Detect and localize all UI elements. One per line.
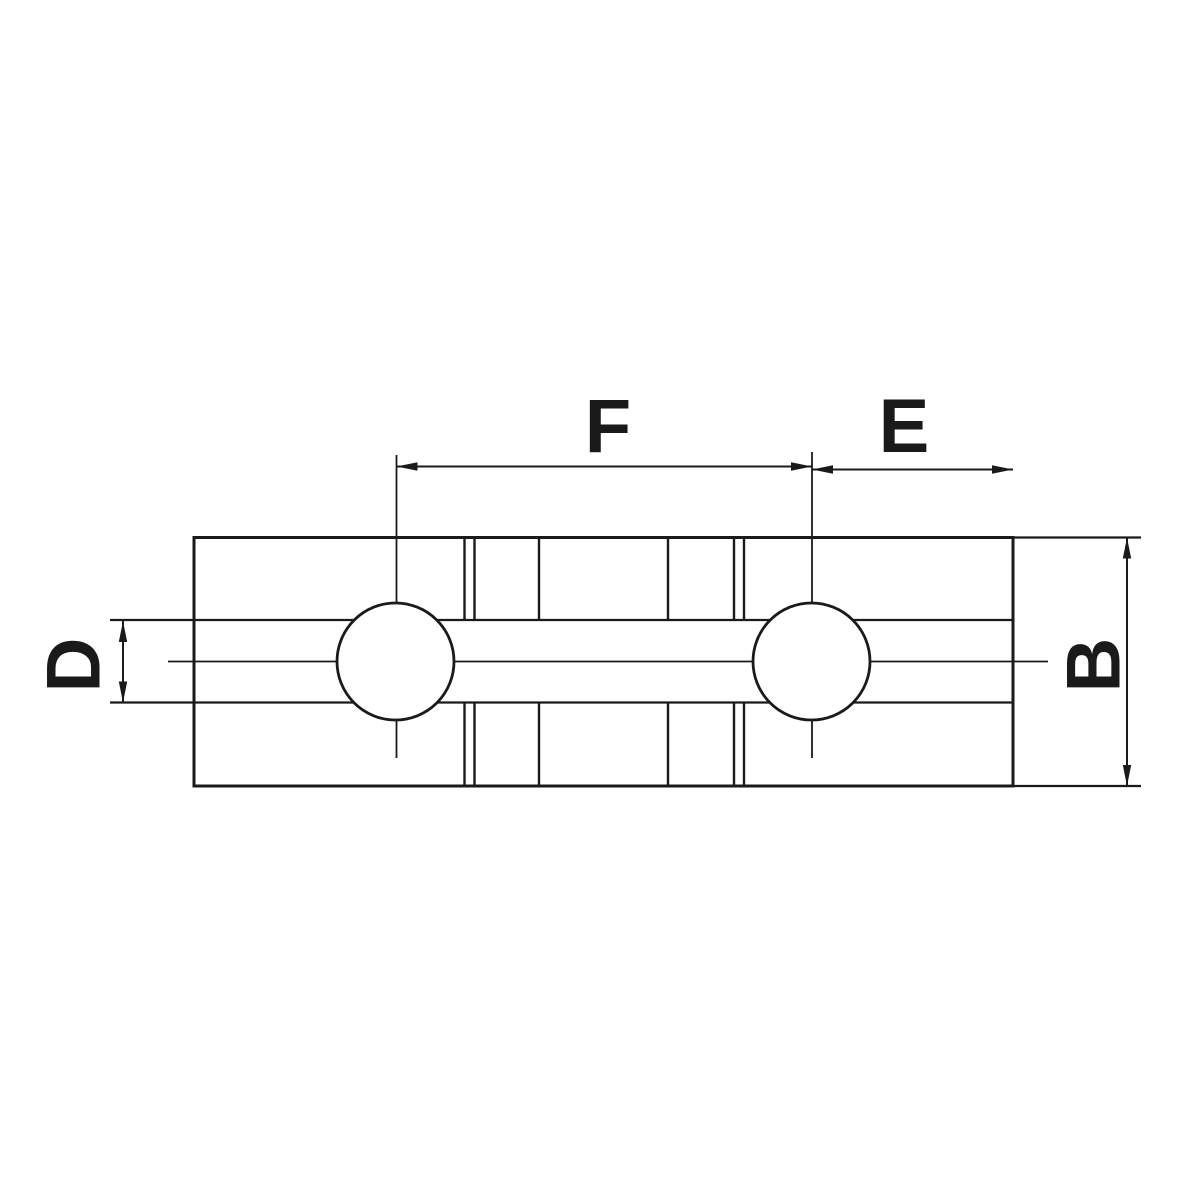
dim-label-d: D xyxy=(31,638,116,693)
technical-drawing: F E D B xyxy=(0,0,1200,1200)
dim-label-b: B xyxy=(1051,638,1136,693)
dim-label-e: E xyxy=(879,384,930,469)
dim-f-left-arrow-icon xyxy=(397,462,418,470)
right-hole-circle xyxy=(753,603,870,720)
dim-e-left-arrow-icon xyxy=(812,465,833,473)
dim-b-bottom-arrow-icon xyxy=(1123,765,1131,786)
dimension-f: F xyxy=(397,384,813,471)
dim-label-f: F xyxy=(585,384,631,469)
dim-f-right-arrow-icon xyxy=(791,462,812,470)
dim-e-right-arrow-icon xyxy=(992,465,1013,473)
dim-d-bottom-arrow-icon xyxy=(119,682,127,703)
dim-d-top-arrow-icon xyxy=(119,621,127,642)
dimension-e: E xyxy=(812,384,1013,474)
left-hole-circle xyxy=(337,603,454,720)
dimension-d: D xyxy=(31,621,127,703)
dim-b-top-arrow-icon xyxy=(1123,538,1131,559)
drawing-canvas: F E D B xyxy=(0,0,1200,1200)
centerlines xyxy=(168,452,1048,758)
